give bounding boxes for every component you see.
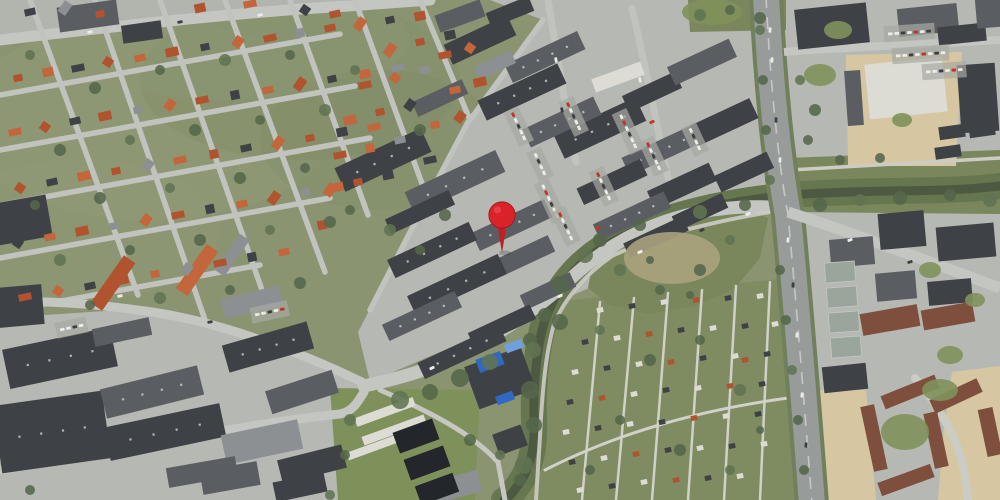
tree xyxy=(595,325,605,335)
tree xyxy=(125,135,135,145)
tree xyxy=(325,490,335,500)
tree xyxy=(809,104,821,116)
house xyxy=(230,90,241,101)
tree xyxy=(414,124,426,136)
tree xyxy=(345,205,355,215)
court xyxy=(826,286,857,308)
tree xyxy=(439,209,451,221)
tree xyxy=(585,465,595,475)
tree xyxy=(25,485,35,495)
tree xyxy=(495,450,505,460)
tree xyxy=(694,264,706,276)
tree xyxy=(538,308,552,322)
tree xyxy=(340,450,350,460)
tree xyxy=(695,335,705,345)
tree xyxy=(234,172,246,184)
tree xyxy=(285,50,295,60)
tree xyxy=(854,194,866,206)
tree xyxy=(725,465,735,475)
tree xyxy=(319,104,331,116)
tree xyxy=(758,75,768,85)
tree xyxy=(422,384,438,400)
tree xyxy=(755,25,765,35)
green-patch xyxy=(922,379,958,401)
parking-row xyxy=(921,61,966,80)
tree xyxy=(725,235,735,245)
tree xyxy=(525,342,541,358)
tree xyxy=(30,200,40,210)
tree xyxy=(756,426,764,434)
pin-head xyxy=(489,202,515,228)
tree xyxy=(391,391,409,409)
vehicle xyxy=(791,282,794,287)
vehicle xyxy=(769,27,772,32)
building xyxy=(875,270,917,301)
tree xyxy=(781,315,791,325)
house xyxy=(209,149,220,160)
green-patch xyxy=(824,21,852,39)
tree xyxy=(739,199,751,211)
tree xyxy=(165,183,175,193)
green-patch xyxy=(965,293,985,307)
tree xyxy=(803,135,813,145)
tree xyxy=(551,276,569,294)
tree xyxy=(795,75,805,85)
house xyxy=(247,252,258,263)
tree xyxy=(255,115,265,125)
tree xyxy=(189,124,201,136)
tree xyxy=(754,12,766,24)
vehicle xyxy=(804,442,807,447)
building xyxy=(822,363,868,393)
tree xyxy=(265,225,275,235)
tree xyxy=(344,414,356,426)
house xyxy=(205,204,216,215)
court xyxy=(824,261,855,283)
tree xyxy=(521,381,539,399)
tree xyxy=(761,125,771,135)
tree xyxy=(787,365,797,375)
map-canvas[interactable] xyxy=(0,0,1000,500)
pin-highlight xyxy=(494,206,501,213)
tree xyxy=(225,285,235,295)
tree xyxy=(893,191,907,205)
tree xyxy=(294,277,306,289)
vehicle xyxy=(795,332,798,337)
tree xyxy=(384,224,396,236)
tree xyxy=(634,219,646,231)
vehicle xyxy=(775,117,778,122)
tree xyxy=(154,292,166,304)
building xyxy=(975,0,1000,29)
tree xyxy=(813,198,827,212)
tree xyxy=(482,354,498,370)
vehicle xyxy=(800,392,803,397)
tree xyxy=(54,254,66,266)
tree xyxy=(593,233,607,247)
tree xyxy=(94,192,106,204)
tree xyxy=(350,65,360,75)
tree xyxy=(25,50,35,60)
building xyxy=(878,210,927,250)
tree xyxy=(793,415,803,425)
tree xyxy=(577,247,593,263)
pin-shadow xyxy=(499,251,511,256)
green-patch xyxy=(881,414,929,450)
tree xyxy=(644,354,656,366)
tree xyxy=(85,300,95,310)
tree xyxy=(983,193,997,207)
court xyxy=(830,336,861,358)
tree xyxy=(615,415,625,425)
tree xyxy=(219,54,231,66)
tree xyxy=(835,155,845,165)
green-patch xyxy=(804,64,836,86)
tree xyxy=(875,153,885,163)
green-patch xyxy=(624,232,720,284)
tree xyxy=(765,175,775,185)
tree xyxy=(514,474,526,486)
green-patch xyxy=(937,346,963,364)
tree xyxy=(54,144,66,156)
house xyxy=(295,28,306,39)
tree xyxy=(125,245,135,255)
tree xyxy=(526,417,542,433)
green-patch xyxy=(892,113,912,127)
building xyxy=(936,223,997,262)
vehicle xyxy=(771,57,774,62)
tree xyxy=(655,285,665,295)
tree xyxy=(324,216,336,228)
building xyxy=(0,284,45,328)
tree xyxy=(300,163,310,173)
green-patch xyxy=(919,262,941,278)
tree xyxy=(674,444,686,456)
tree xyxy=(775,265,785,275)
tree xyxy=(155,65,165,75)
tree xyxy=(694,9,706,21)
tree xyxy=(89,82,101,94)
tree xyxy=(725,5,735,15)
tree xyxy=(693,205,707,219)
tree xyxy=(415,245,425,255)
tree xyxy=(734,384,746,396)
tree xyxy=(451,369,469,387)
tree xyxy=(614,264,626,276)
court xyxy=(828,311,859,333)
tree xyxy=(686,291,694,299)
vehicle xyxy=(786,237,789,242)
tree xyxy=(799,465,809,475)
vehicle xyxy=(779,157,782,162)
tree xyxy=(944,189,956,201)
tree xyxy=(646,256,654,264)
tree xyxy=(552,314,568,330)
tree xyxy=(515,456,533,474)
tree xyxy=(194,234,206,246)
tree xyxy=(464,434,476,446)
house xyxy=(365,143,376,154)
